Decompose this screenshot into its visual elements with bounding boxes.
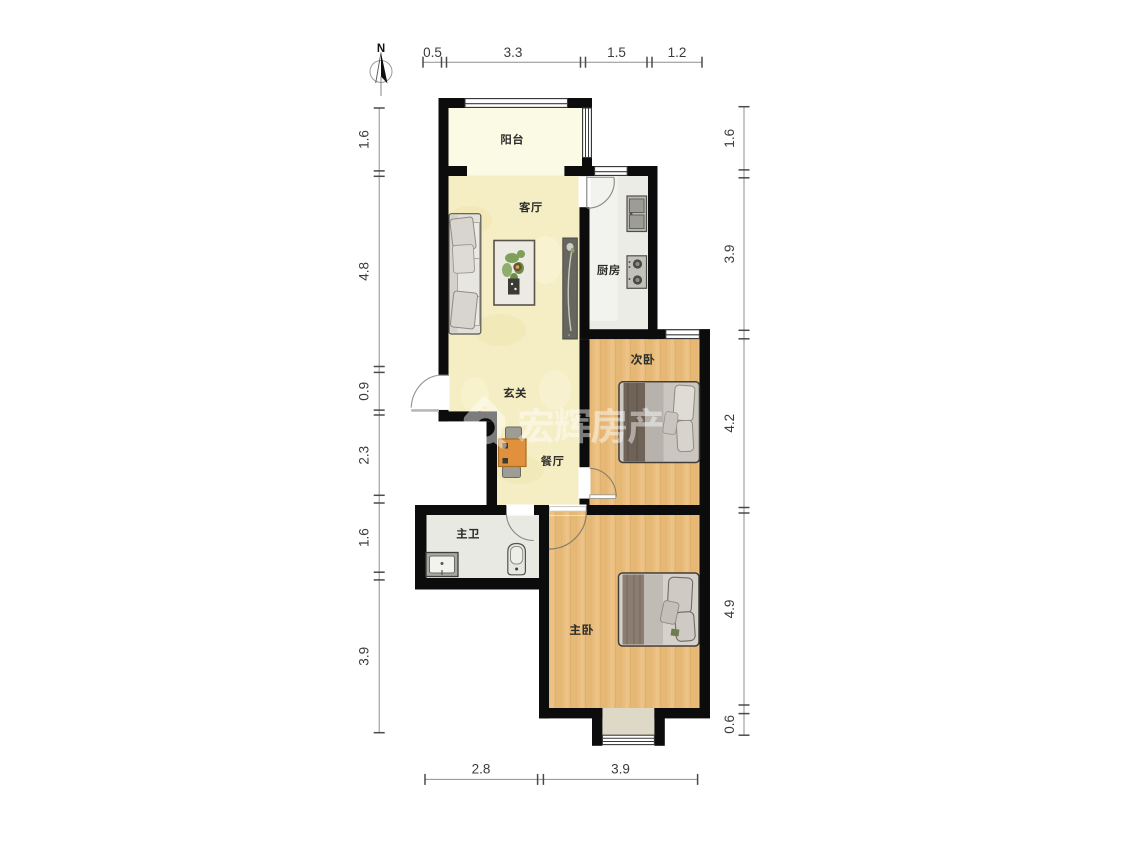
- svg-text:4.8: 4.8: [357, 262, 372, 281]
- svg-text:3.9: 3.9: [722, 245, 737, 264]
- svg-text:1.6: 1.6: [357, 130, 372, 149]
- svg-text:3.3: 3.3: [504, 45, 523, 60]
- svg-text:1.6: 1.6: [357, 528, 372, 547]
- svg-text:0.9: 0.9: [357, 382, 372, 401]
- svg-text:1.6: 1.6: [722, 129, 737, 148]
- svg-text:N: N: [377, 43, 385, 55]
- svg-text:1.5: 1.5: [607, 45, 626, 60]
- svg-text:3.9: 3.9: [357, 647, 372, 666]
- svg-text:0.5: 0.5: [423, 45, 442, 60]
- svg-text:1.2: 1.2: [668, 45, 687, 60]
- svg-text:2.3: 2.3: [357, 446, 372, 465]
- svg-text:2.8: 2.8: [472, 762, 491, 777]
- svg-text:4.2: 4.2: [722, 414, 737, 433]
- svg-text:0.6: 0.6: [722, 715, 737, 734]
- svg-text:4.9: 4.9: [722, 600, 737, 619]
- svg-text:3.9: 3.9: [611, 762, 630, 777]
